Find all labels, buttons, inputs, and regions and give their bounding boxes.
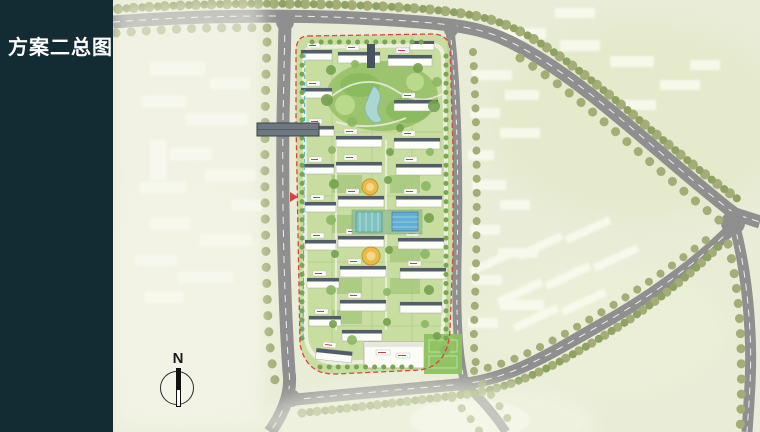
- compass-north-label: N: [159, 350, 197, 368]
- pedestrian-bridge: [257, 123, 319, 136]
- entrance-structure: [367, 44, 375, 68]
- site-plan-map: [0, 0, 760, 432]
- playground: [362, 247, 380, 265]
- slide-canvas: N 方案二总图: [0, 0, 760, 432]
- building-row: [400, 302, 442, 313]
- compass-needle-north: [176, 368, 181, 389]
- swimming-pool: [352, 210, 422, 234]
- north-compass: N: [159, 350, 197, 412]
- title-sidebar: 方案二总图: [0, 0, 113, 432]
- page-title: 方案二总图: [8, 31, 113, 60]
- playground: [362, 179, 378, 195]
- school-building: [364, 342, 424, 368]
- residential-site: [290, 34, 462, 374]
- compass-needle-south: [176, 389, 181, 407]
